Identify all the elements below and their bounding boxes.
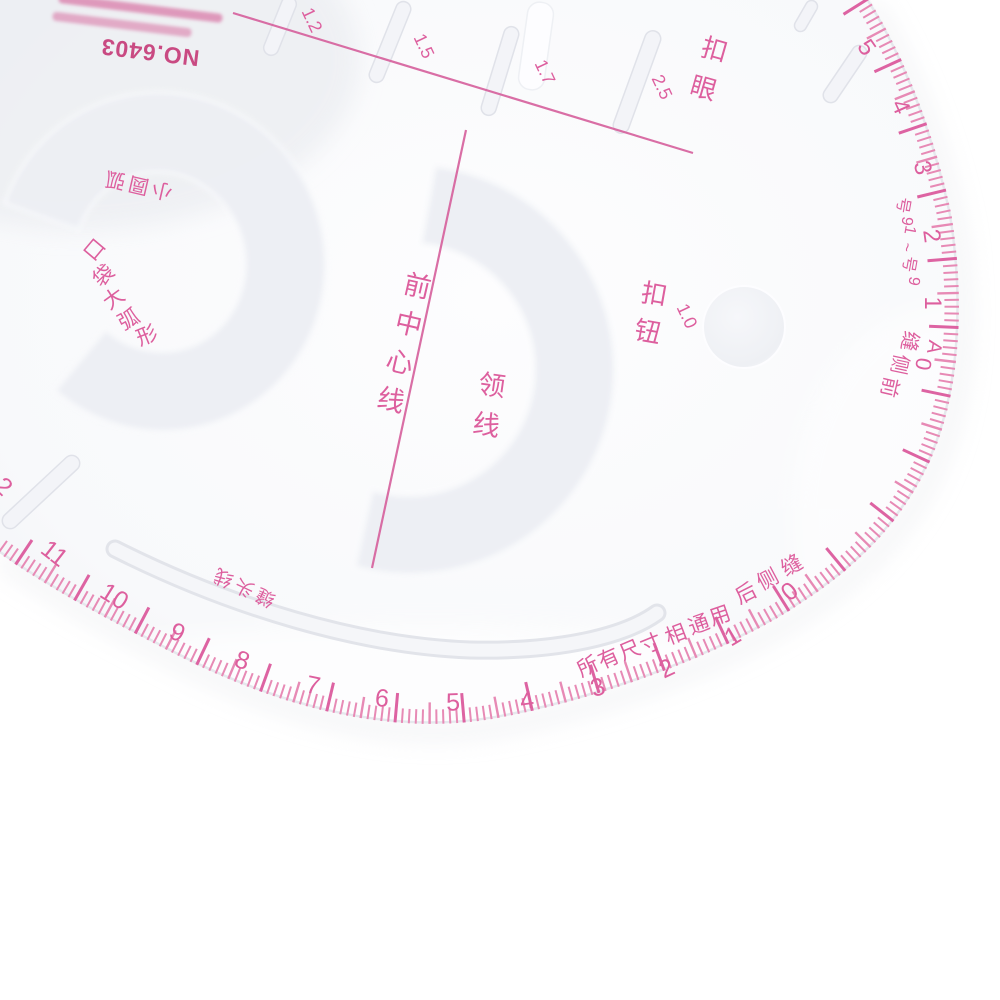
tick-mark: [929, 326, 958, 327]
tick-mark: [943, 272, 958, 273]
ruler-graphic: [0, 0, 1000, 1000]
tick-mark: [943, 347, 957, 348]
tick-mark: [944, 320, 959, 321]
tick-mark: [944, 279, 959, 280]
tick-mark: [944, 334, 959, 335]
tick-mark: [937, 293, 959, 294]
tick-mark: [470, 707, 471, 722]
tick-mark: [402, 708, 403, 723]
tick-mark: [943, 265, 957, 266]
tick-mark: [942, 252, 956, 253]
tick-mark: [416, 709, 417, 724]
tick-mark: [943, 340, 958, 341]
tick-mark: [450, 709, 451, 724]
button-hole: [703, 286, 785, 368]
product-photo-sewing-template-ruler: NO.6403扣眼1.21.51.72.5扣钮1.0前中心线领线口袋大弧形小圆弧…: [0, 0, 1000, 1000]
tick-mark: [409, 709, 410, 723]
tick-mark: [944, 286, 959, 287]
tick-mark: [456, 709, 457, 724]
